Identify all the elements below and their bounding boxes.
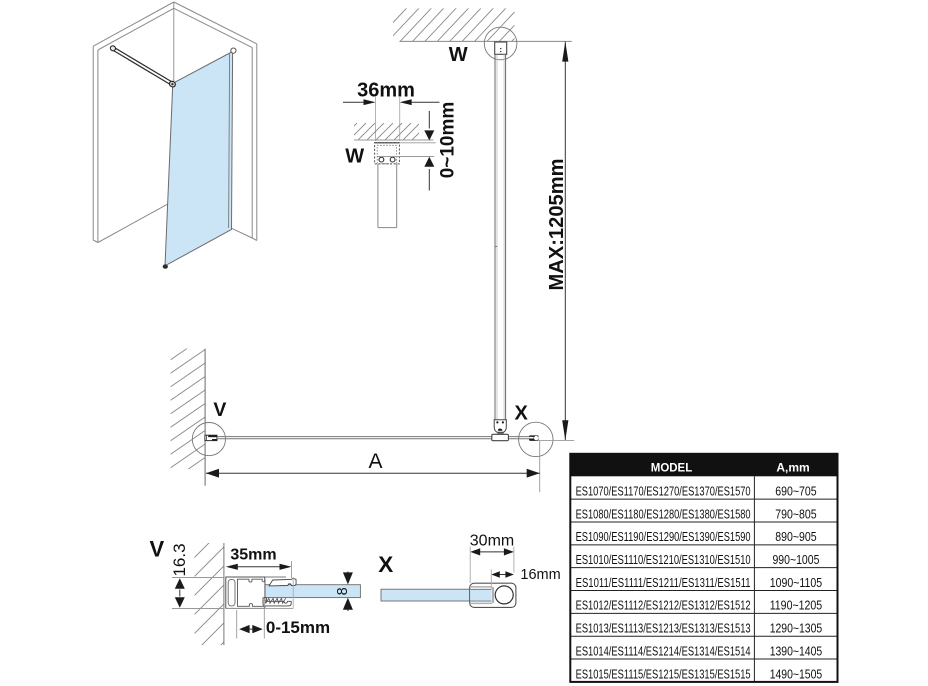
- svg-text:ES1010/ES1110/ES1210/ES1310/ES: ES1010/ES1110/ES1210/ES1310/ES1510: [576, 552, 751, 567]
- svg-text:W: W: [345, 145, 364, 167]
- svg-text:MODEL: MODEL: [651, 460, 693, 474]
- svg-text:1490~1505: 1490~1505: [770, 666, 823, 681]
- svg-text:690~705: 690~705: [775, 484, 816, 499]
- svg-text:MAX:1205mm: MAX:1205mm: [546, 159, 568, 291]
- svg-text:ES1012/ES1112/ES1212/ES1312/ES: ES1012/ES1112/ES1212/ES1312/ES1512: [576, 598, 751, 613]
- svg-text:ES1013/ES1113/ES1213/ES1313/ES: ES1013/ES1113/ES1213/ES1313/ES1513: [576, 621, 751, 636]
- svg-text:1090~1105: 1090~1105: [770, 575, 823, 590]
- svg-text:V: V: [150, 537, 165, 562]
- svg-text:A: A: [368, 450, 382, 473]
- svg-text:W: W: [449, 44, 468, 66]
- svg-text:ES1011/ES1111/ES1211/ES1311/ES: ES1011/ES1111/ES1211/ES1311/ES1511: [576, 575, 751, 590]
- svg-text:ES1014/ES1114/ES1214/ES1314/ES: ES1014/ES1114/ES1214/ES1314/ES1514: [576, 643, 751, 658]
- svg-text:X: X: [378, 552, 393, 577]
- svg-text:1190~1205: 1190~1205: [770, 598, 823, 613]
- svg-text:35mm: 35mm: [230, 547, 276, 564]
- svg-text:1290~1305: 1290~1305: [770, 621, 823, 636]
- svg-text:0-15mm: 0-15mm: [266, 618, 330, 637]
- svg-text:ES1015/ES1115/ES1215/ES1315/ES: ES1015/ES1115/ES1215/ES1315/ES1515: [576, 666, 751, 681]
- svg-text:16.3: 16.3: [170, 543, 189, 576]
- svg-text:890~905: 890~905: [775, 529, 816, 544]
- svg-text:36mm: 36mm: [357, 79, 415, 101]
- svg-text:1390~1405: 1390~1405: [770, 643, 823, 658]
- svg-text:ES1080/ES1180/ES1280/ES1380/ES: ES1080/ES1180/ES1280/ES1380/ES1580: [576, 506, 751, 521]
- svg-text:X: X: [515, 402, 529, 424]
- svg-text:ES1090/ES1190/ES1290/ES1390/ES: ES1090/ES1190/ES1290/ES1390/ES1590: [576, 529, 751, 544]
- svg-text:990~1005: 990~1005: [772, 552, 819, 567]
- svg-text:30mm: 30mm: [470, 533, 514, 550]
- svg-text:790~805: 790~805: [775, 506, 816, 521]
- svg-text:8: 8: [335, 587, 351, 595]
- svg-text:ES1070/ES1170/ES1270/ES1370/ES: ES1070/ES1170/ES1270/ES1370/ES1570: [576, 484, 751, 499]
- svg-text:A,mm: A,mm: [776, 460, 809, 474]
- svg-text:16mm: 16mm: [520, 567, 560, 583]
- svg-text:V: V: [213, 399, 226, 421]
- svg-text:0~10mm: 0~10mm: [438, 102, 459, 179]
